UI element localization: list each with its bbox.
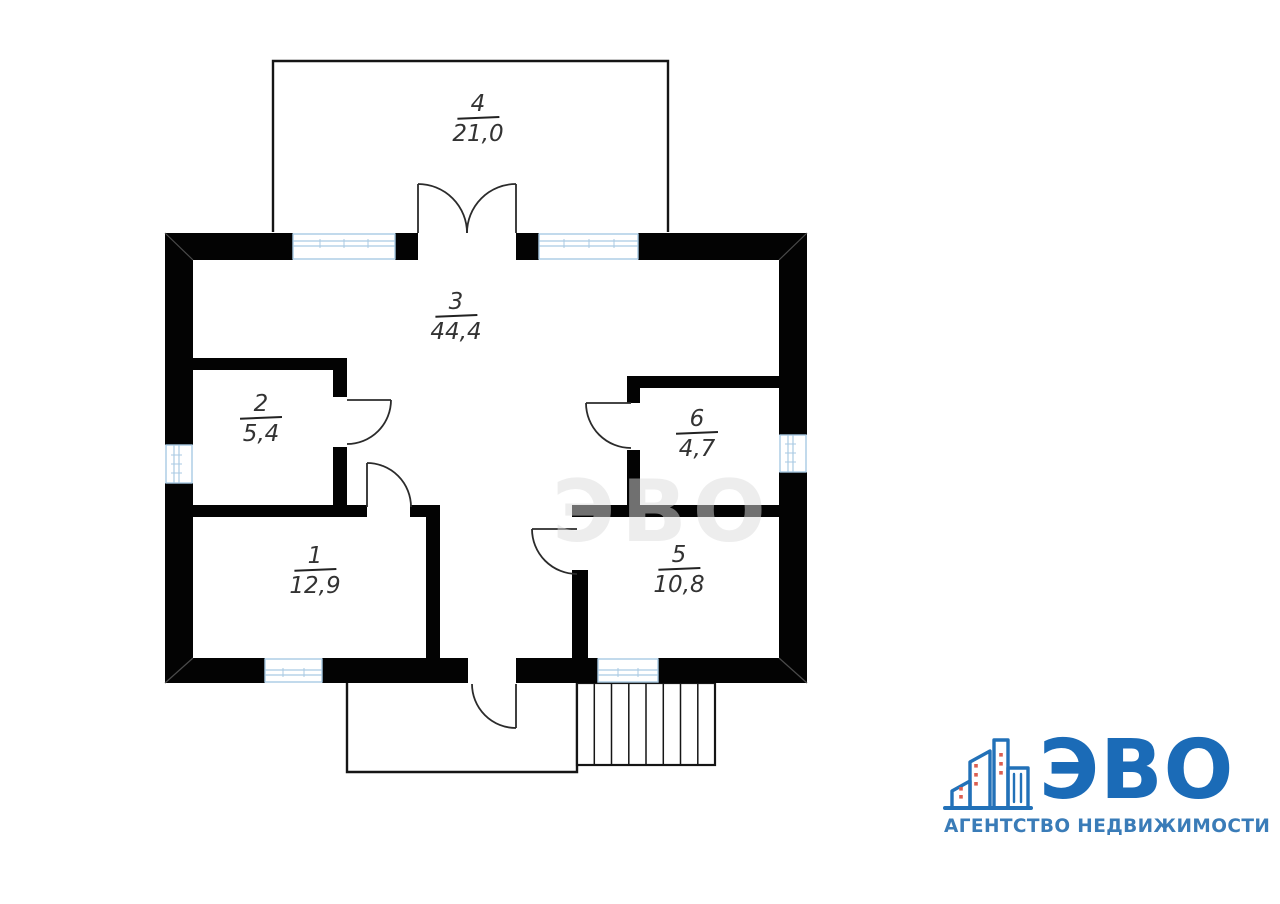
room-label-5: 5 10,8 [653, 543, 704, 597]
logo-window-dots [959, 753, 1003, 799]
room-area: 10,8 [653, 573, 704, 597]
room-area: 4,7 [674, 437, 720, 461]
window-right [780, 435, 806, 472]
room-label-2: 2 5,4 [238, 392, 284, 446]
stairs [577, 683, 715, 765]
logo-tagline: АГЕНТСТВО НЕДВИЖИМОСТИ [944, 816, 1270, 837]
floorplan-canvas: ЭВО 4 21,0 3 44,4 2 5,4 6 4,7 1 12,9 5 1… [0, 0, 1280, 904]
label-rule [676, 431, 718, 435]
room-area: 44,4 [430, 320, 481, 344]
room-number: 1 [289, 544, 340, 568]
window-top-right [539, 234, 638, 259]
window-bottom-room1 [265, 659, 322, 682]
room-number: 4 [452, 92, 503, 116]
room-area: 12,9 [289, 574, 340, 598]
door-double-terrace [418, 184, 516, 233]
room-label-1: 1 12,9 [289, 544, 340, 598]
room-area: 21,0 [452, 122, 503, 146]
room-area: 5,4 [238, 422, 284, 446]
doors [347, 184, 631, 728]
logo: ЭВО АГЕНТСТВО НЕДВИЖИМОСТИ [940, 728, 1230, 846]
door-porch [472, 684, 516, 728]
label-rule [435, 314, 477, 318]
logo-buildings-icon [942, 730, 1034, 812]
door-room1 [367, 463, 411, 507]
logo-name: ЭВО [1039, 730, 1234, 812]
label-rule [457, 116, 499, 120]
label-rule [294, 568, 336, 572]
label-rule [240, 416, 282, 420]
door-room6 [586, 403, 631, 448]
label-rule [658, 567, 700, 571]
window-top-left [293, 234, 395, 259]
window-left [166, 445, 192, 483]
room-number: 2 [238, 392, 284, 416]
door-room2 [347, 400, 391, 444]
room-number: 3 [430, 290, 481, 314]
room-label-6: 6 4,7 [674, 407, 720, 461]
door-room5 [532, 529, 577, 574]
window-bottom-room5 [598, 659, 658, 682]
room-label-3: 3 44,4 [430, 290, 481, 344]
room-number: 6 [674, 407, 720, 431]
porch-outline [347, 682, 577, 772]
room-label-4: 4 21,0 [452, 92, 503, 146]
room-number: 5 [653, 543, 704, 567]
